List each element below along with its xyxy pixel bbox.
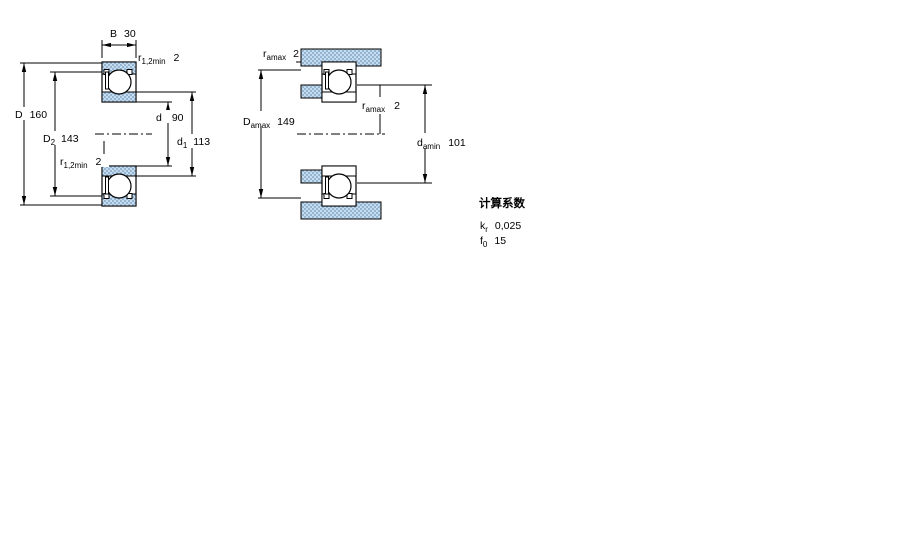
calculation-factors: 计算系数 kr0,025 f015 bbox=[479, 196, 525, 249]
bearing-section-bottom bbox=[102, 166, 136, 206]
shield bbox=[106, 72, 109, 89]
technical-drawing: B30 r1,2min2 D160 D2143 d90 d1113 r1,2mi… bbox=[0, 0, 900, 560]
ball bbox=[327, 70, 351, 94]
bearing-cross-section-view: B30 r1,2min2 D160 D2143 d90 d1113 r1,2mi… bbox=[13, 28, 213, 206]
factor-f0: f015 bbox=[480, 235, 506, 249]
mounting-dimensions-view: ramax2 Damax149 ramax2 damin101 bbox=[241, 48, 470, 219]
shield bbox=[106, 177, 109, 194]
dimension-label-D2: D2143 bbox=[43, 133, 79, 147]
ball bbox=[327, 174, 351, 198]
bearing-datasheet-drawing: B30 r1,2min2 D160 D2143 d90 d1113 r1,2mi… bbox=[0, 0, 900, 560]
dimension-label-B: B30 bbox=[110, 28, 136, 40]
dimension-label-D: D160 bbox=[15, 109, 47, 121]
calculation-factors-title: 计算系数 bbox=[479, 196, 525, 210]
bearing-section-top-outline bbox=[322, 62, 356, 102]
shaft-shoulder-bottom bbox=[301, 170, 322, 183]
shield bbox=[326, 177, 329, 194]
ball bbox=[107, 70, 131, 94]
factor-kr: kr0,025 bbox=[480, 220, 521, 234]
bearing-section-bottom-outline bbox=[322, 166, 356, 206]
dimension-label-ramax-top: ramax2 bbox=[263, 48, 299, 62]
shaft-shoulder-top bbox=[301, 85, 322, 98]
shield bbox=[326, 72, 329, 89]
dimension-label-r12min-top: r1,2min2 bbox=[138, 52, 180, 66]
dimension-label-d1: d1113 bbox=[177, 136, 210, 150]
ball bbox=[107, 174, 131, 198]
bearing-section-top bbox=[102, 62, 136, 102]
dimension-label-ramax-mid: ramax2 bbox=[362, 100, 400, 114]
dimension-label-r12min-mid: r1,2min2 bbox=[60, 156, 102, 170]
